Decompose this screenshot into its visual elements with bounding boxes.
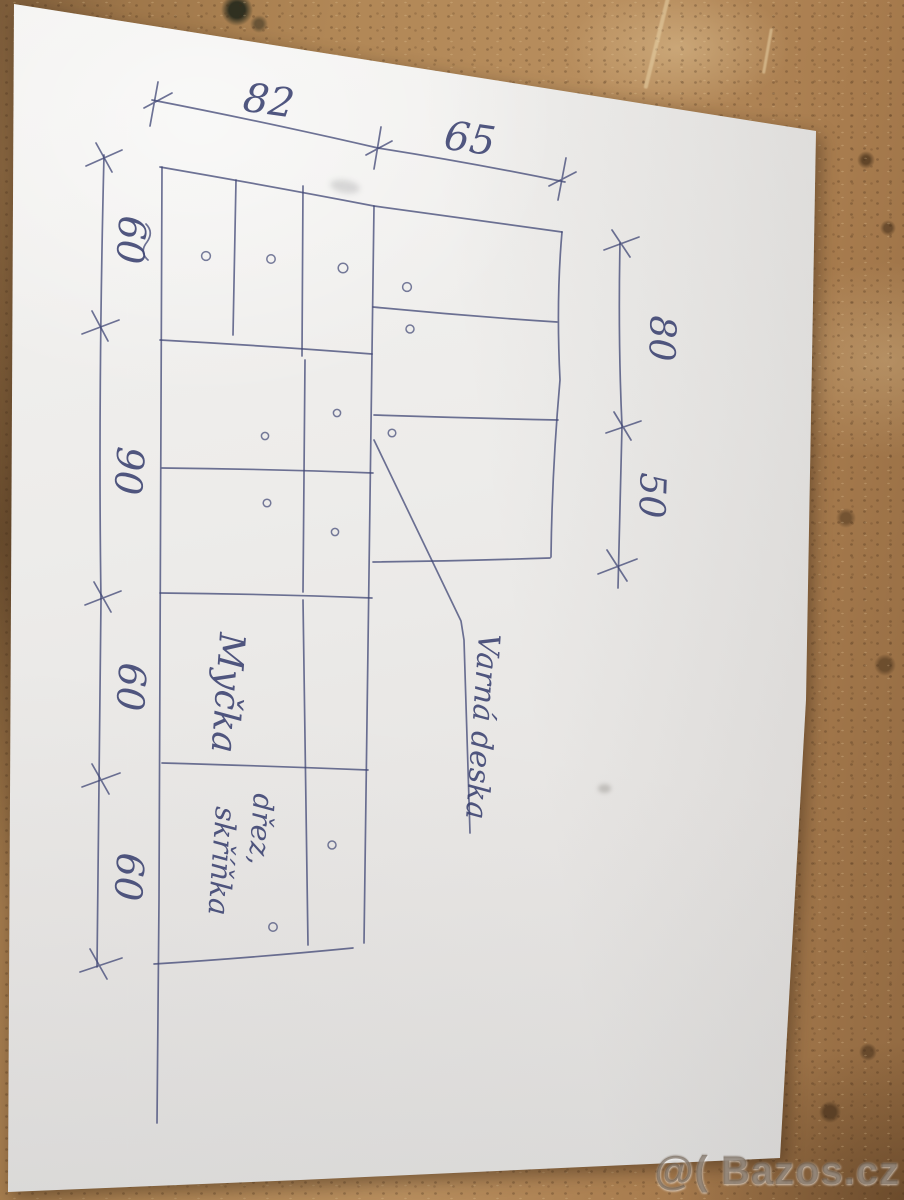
row1-bottom (160, 340, 372, 354)
row1-divider-b (302, 186, 303, 356)
dimension-line-top (144, 82, 576, 200)
dim-label-50: 50 (630, 472, 673, 519)
knob-icon (261, 432, 268, 439)
right-block-divider-a (373, 307, 557, 322)
dim-ticks (144, 82, 576, 200)
knob-icon (269, 923, 277, 931)
cooktop-leader (374, 440, 470, 833)
rows34-divider (303, 600, 308, 945)
dim-label-90: 90 (105, 445, 152, 496)
row1-divider-a (233, 180, 236, 335)
knob-icon (267, 255, 275, 263)
knob-icon (202, 252, 211, 261)
right-block-divider-b (374, 415, 558, 420)
photo-scene: 82 65 60 90 60 60 80 50 (0, 0, 904, 1200)
watermark: @( Bazos.cz (654, 1149, 900, 1194)
top-edge (160, 167, 562, 232)
knob-icon (331, 528, 338, 535)
label-dishwasher: Myčka (203, 630, 252, 754)
knob-icon (333, 409, 340, 416)
knob-icon (263, 499, 271, 507)
right-block-bottom (373, 558, 550, 562)
label-sink-line1: dřez, (242, 793, 280, 867)
sketch-labels: Myčka dřez, skříňka Varná deska (201, 630, 506, 916)
band90-bottom (160, 593, 372, 598)
knob-icon (403, 283, 412, 292)
knob-icon (406, 325, 414, 333)
dim-label-60b: 60 (107, 661, 154, 712)
dim-line (152, 100, 565, 182)
dim-label-80: 80 (640, 315, 683, 362)
left-edge (157, 167, 162, 1123)
band90-mid (162, 468, 373, 473)
dim-label-65: 65 (441, 113, 498, 166)
dim-line (618, 243, 622, 588)
center-vertical (364, 206, 374, 943)
dimension-line-right (598, 230, 641, 588)
dim-label-82: 82 (240, 75, 297, 128)
row3-bottom (162, 763, 368, 770)
dim-label-60c: 60 (105, 851, 152, 902)
kitchen-cabinet-sketch: 82 65 60 90 60 60 80 50 (0, 0, 904, 1200)
band90-divider (303, 360, 305, 592)
dim-line (97, 155, 104, 967)
leader-line (374, 440, 470, 833)
label-sink-line2: skříňka (201, 806, 243, 917)
knob-icon (388, 429, 396, 437)
knob-icon (328, 841, 336, 849)
knob-icon (338, 263, 348, 273)
row4-bottom (154, 948, 353, 964)
right-block-edge (551, 232, 562, 557)
